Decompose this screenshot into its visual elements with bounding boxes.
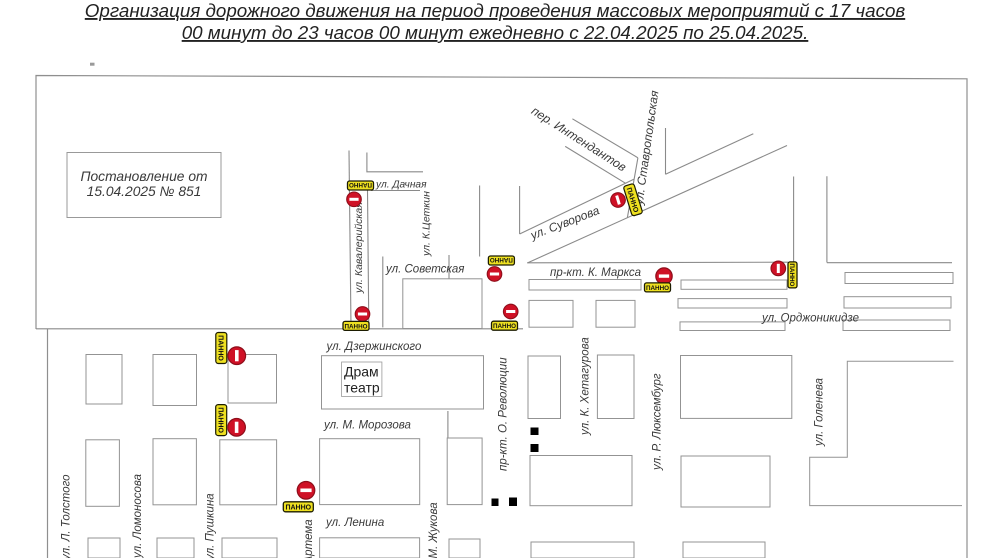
svg-text:театр: театр xyxy=(344,380,380,396)
svg-text:ул. Кавалерийская: ул. Кавалерийская xyxy=(353,202,365,294)
svg-text:Организация дорожного движения: Организация дорожного движения на период… xyxy=(85,0,906,21)
svg-text:пр-кт. О. Революции: пр-кт. О. Революции xyxy=(498,357,510,471)
svg-text:ул. Дзержинского: ул. Дзержинского xyxy=(326,341,422,353)
svg-text:ул. Ленина: ул. Ленина xyxy=(325,517,384,529)
svg-text:ул. Орджоникидзе: ул. Орджоникидзе xyxy=(761,313,859,325)
svg-text:ул. Советская: ул. Советская xyxy=(385,264,464,276)
svg-text:пр-кт. К. Маркса: пр-кт. К. Маркса xyxy=(550,267,641,279)
svg-text:ул. Артема: ул. Артема xyxy=(303,519,315,558)
svg-text:Постановление от: Постановление от xyxy=(81,169,208,184)
svg-text:15.04.2025 № 851: 15.04.2025 № 851 xyxy=(87,184,202,199)
svg-text:ул. Ломоносова: ул. Ломоносова xyxy=(132,474,144,558)
svg-text:ул. Голенева: ул. Голенева xyxy=(814,378,826,447)
svg-text:ул. К. Хетагурова: ул. К. Хетагурова xyxy=(580,337,592,436)
svg-text:00 минут до 23 часов 00 минут: 00 минут до 23 часов 00 минут ежедневно … xyxy=(182,22,809,43)
svg-text:Драм: Драм xyxy=(344,364,379,380)
svg-text:ул. К.Цеткин: ул. К.Цеткин xyxy=(421,191,433,257)
svg-text:ул. Дачная: ул. Дачная xyxy=(375,180,427,191)
svg-text:ул. Пушкина: ул. Пушкина xyxy=(205,493,217,558)
svg-text:ул. М. Морозова: ул. М. Морозова xyxy=(323,420,411,432)
svg-text:ул. Р. Люксембург: ул. Р. Люксембург xyxy=(652,373,664,471)
svg-text:ул. М. Жукова: ул. М. Жукова xyxy=(428,502,440,558)
svg-text:ул. Л. Толстого: ул. Л. Толстого xyxy=(61,474,73,558)
